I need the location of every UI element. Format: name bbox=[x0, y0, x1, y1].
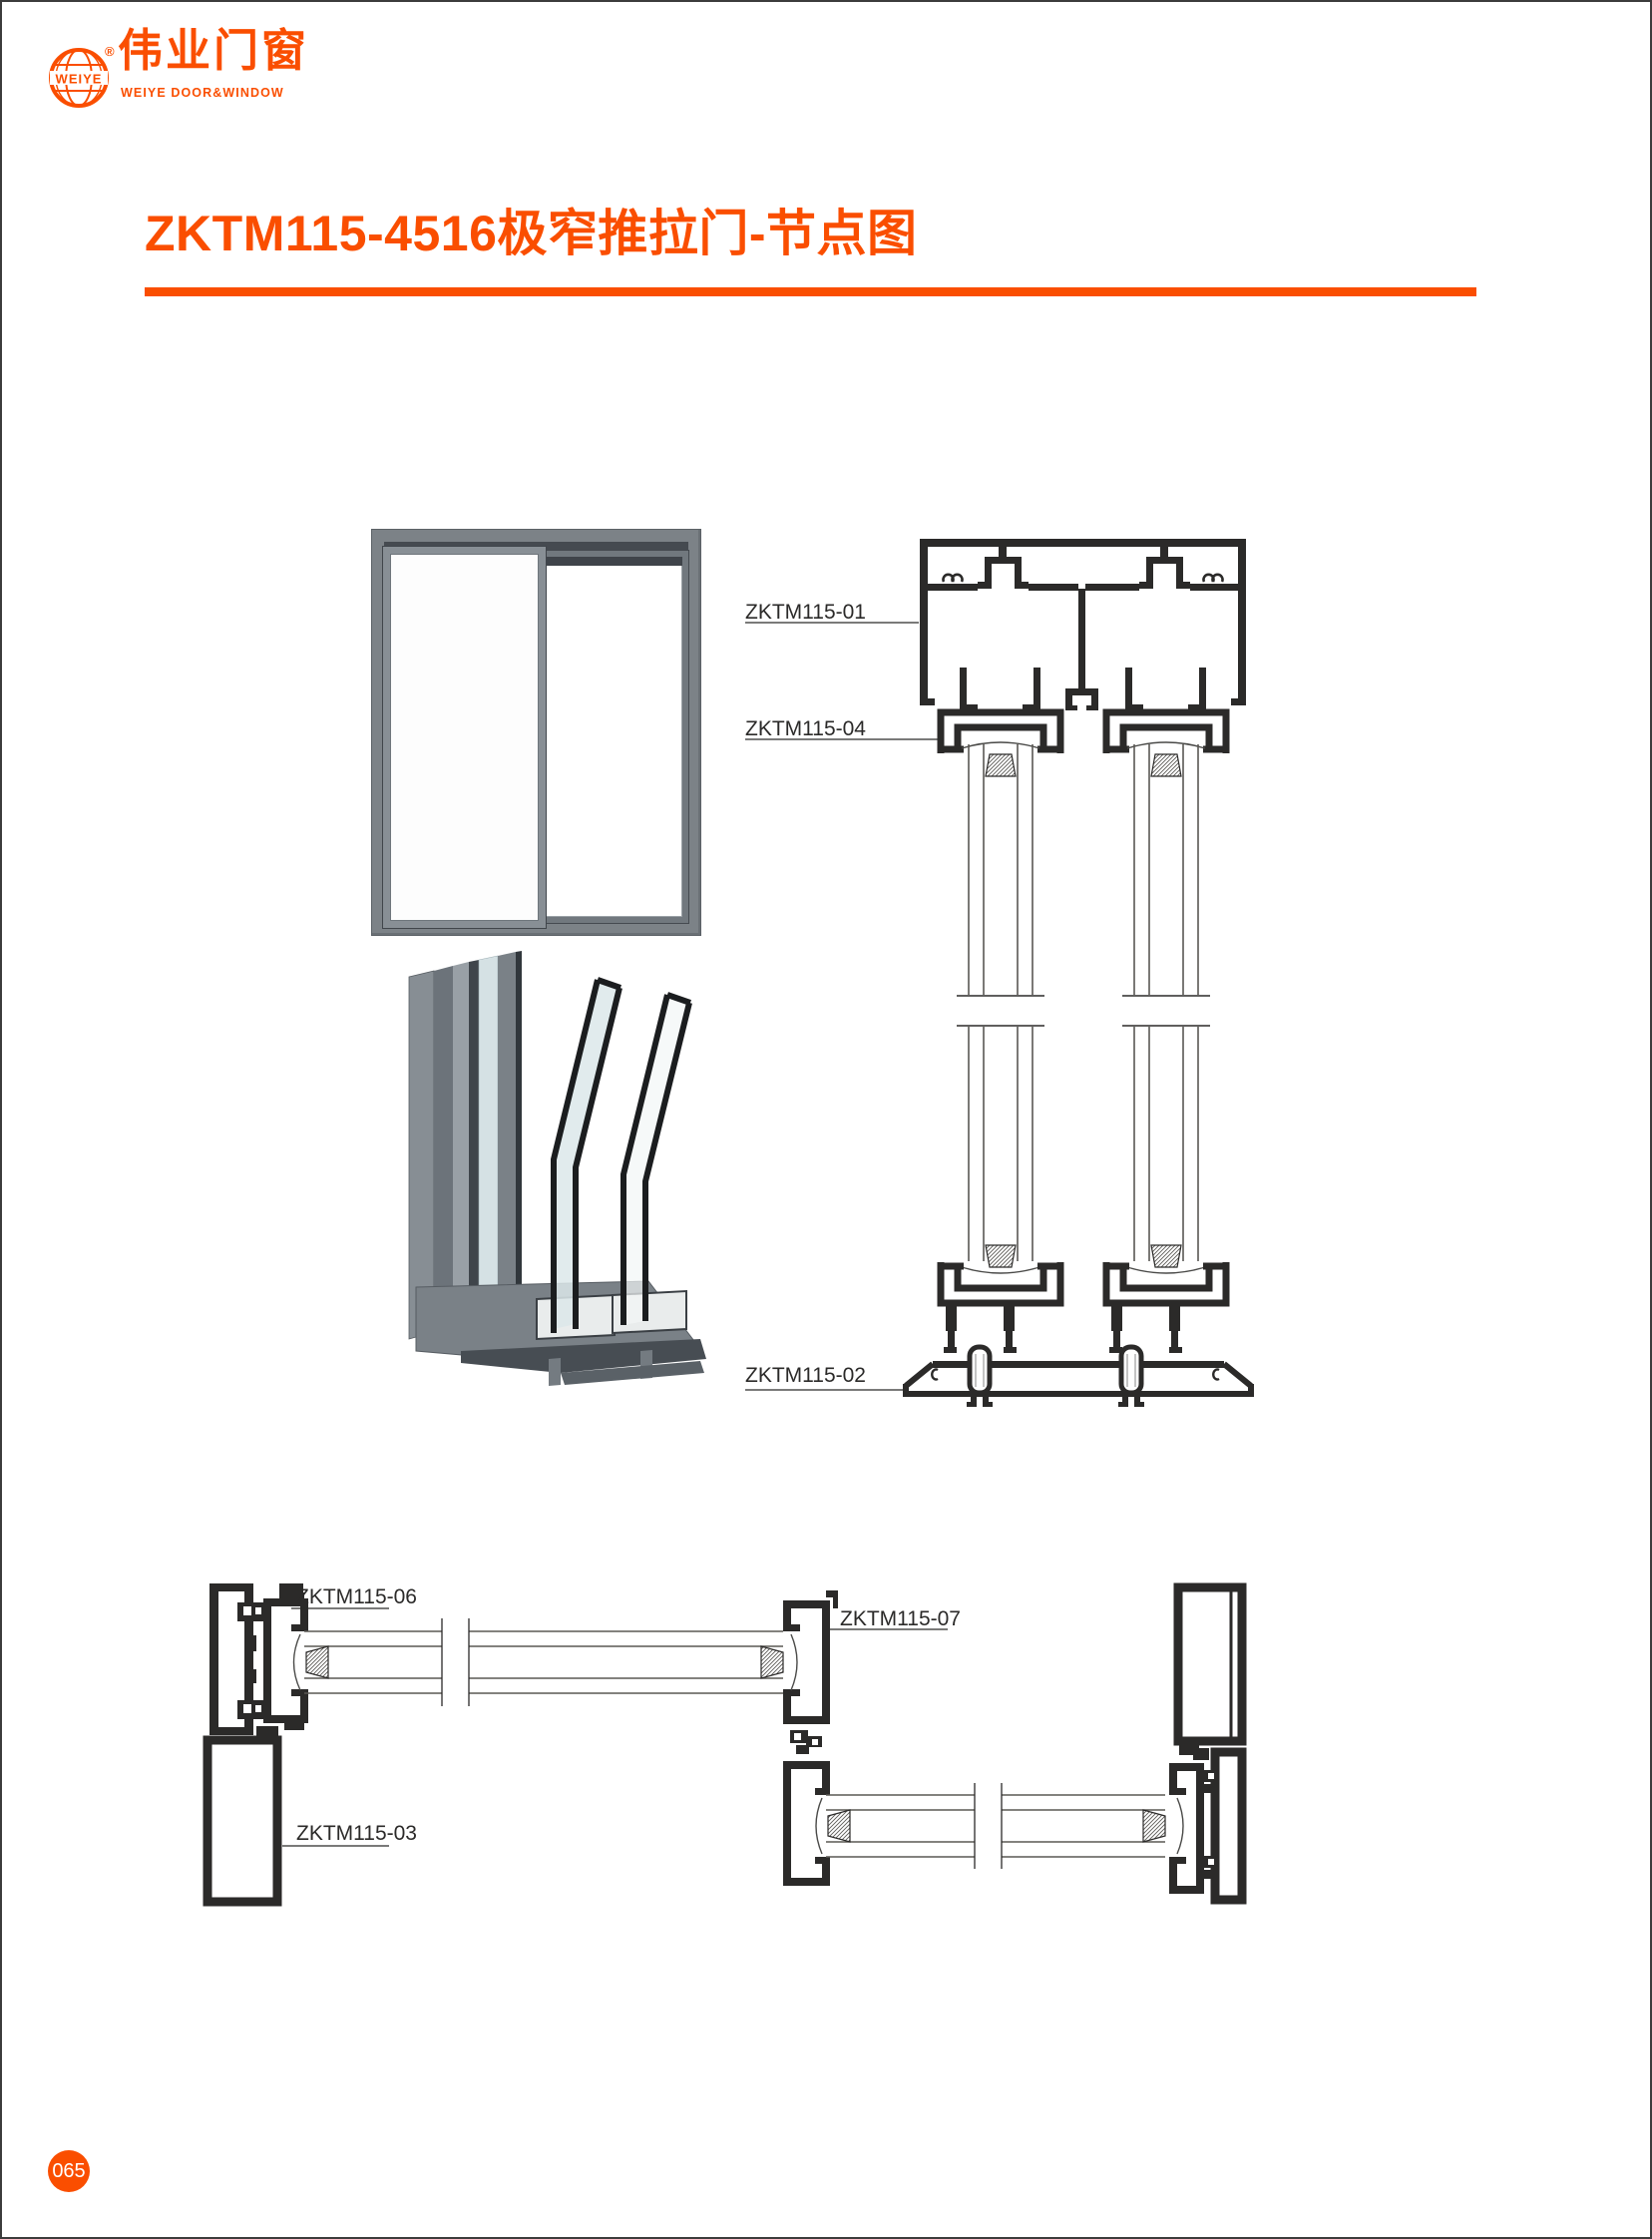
registered-mark: ® bbox=[105, 44, 115, 59]
elevation-right-panel bbox=[534, 551, 688, 923]
door-elevation-figure bbox=[371, 529, 701, 936]
label-zktm115-01: ZKTM115-01 bbox=[745, 601, 866, 624]
glass-panel-1 bbox=[304, 1618, 783, 1706]
brand-name-chinese: 伟业门窗 bbox=[118, 28, 309, 73]
label-zktm115-02: ZKTM115-02 bbox=[745, 1364, 866, 1387]
interlock-zktm115-07 bbox=[783, 1590, 838, 1724]
vertical-section-figure: ZKTM115-01 ZKTM115-04 ZKTM115-02 bbox=[700, 521, 1279, 1419]
plan-section-figure: ZKTM115-06 ZKTM115-07 ZKTM115-03 bbox=[182, 1568, 1279, 1918]
elevation-left-panel bbox=[383, 547, 546, 928]
page-number-badge: 065 bbox=[48, 2150, 90, 2192]
vertical-section-labels: ZKTM115-01 ZKTM115-04 ZKTM115-02 bbox=[745, 601, 940, 1390]
corner-3d-section-figure bbox=[396, 950, 715, 1389]
label-zktm115-07: ZKTM115-07 bbox=[840, 1607, 961, 1630]
right-jamb-frame bbox=[1169, 1587, 1242, 1900]
globe-weiye-text: WEIYE bbox=[56, 72, 103, 87]
label-zktm115-04: ZKTM115-04 bbox=[745, 717, 866, 740]
bottom-track-profile bbox=[903, 1347, 1254, 1407]
glass-panel-2 bbox=[826, 1783, 1165, 1869]
catalog-page: WEIYE ® 伟业门窗 WEIYE DOOR&WINDOW ZKTM115-4… bbox=[0, 0, 1652, 2239]
plan-section-labels: ZKTM115-06 ZKTM115-07 ZKTM115-03 bbox=[282, 1585, 961, 1846]
label-zktm115-06: ZKTM115-06 bbox=[296, 1585, 417, 1608]
page-title: ZKTM115-4516极窄推拉门-节点图 bbox=[145, 206, 918, 263]
interlock-panel-2 bbox=[783, 1761, 830, 1886]
elevation-right-panel-track-strip bbox=[540, 557, 682, 566]
weiye-globe-icon: WEIYE bbox=[48, 47, 110, 109]
label-zktm115-03: ZKTM115-03 bbox=[296, 1822, 417, 1845]
interlock-clips bbox=[790, 1730, 822, 1754]
leaf-rail-zktm115-06 bbox=[263, 1592, 308, 1730]
insulated-glass-3d bbox=[554, 980, 690, 1333]
lower-frame-zktm115-03 bbox=[207, 1740, 277, 1902]
leaf-vertical-assembly bbox=[941, 668, 1060, 1353]
brand-name-english: WEIYE DOOR&WINDOW bbox=[121, 86, 284, 100]
page-number: 065 bbox=[52, 2160, 85, 2183]
jamb-profile-3d bbox=[409, 951, 522, 1339]
title-underline-rule bbox=[145, 287, 1476, 296]
top-track-profile bbox=[920, 539, 1246, 710]
